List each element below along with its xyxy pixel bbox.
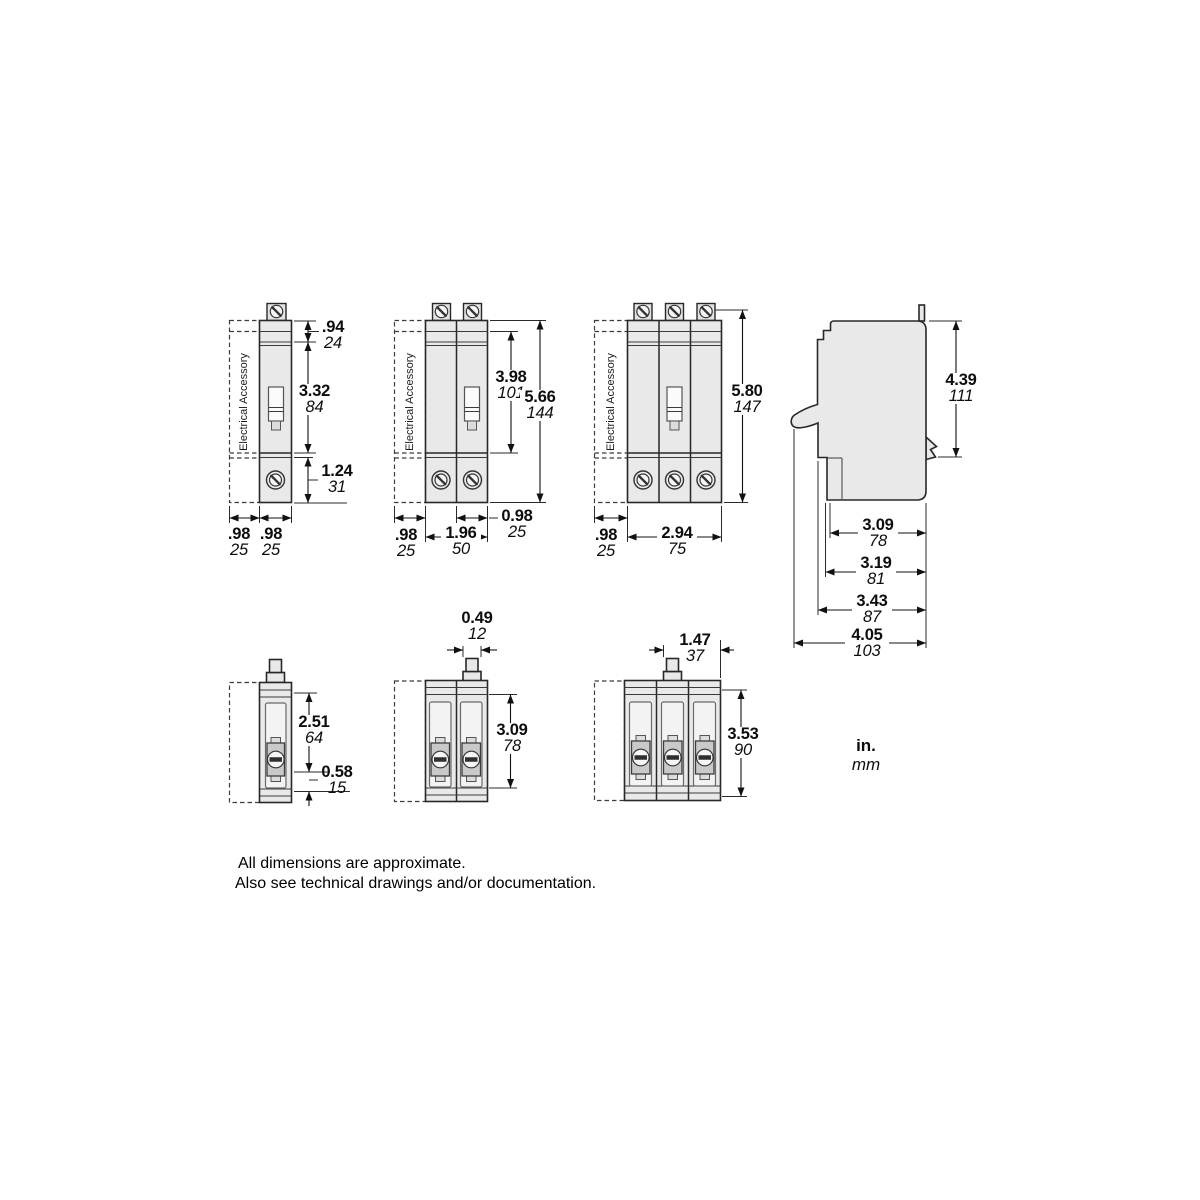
top-view-3pole [595, 640, 748, 801]
load-terminal-screw-icon [267, 471, 285, 489]
dim-mm-value: 25 [597, 544, 615, 560]
dim-front2p-height-total: 5.66 144 [520, 390, 560, 421]
dim-front3p-width-accessory: .98 25 [589, 528, 623, 559]
line-terminal-screw-icon [433, 304, 451, 321]
dim-side-depth-d: 4.05 103 [845, 628, 889, 659]
dim-side-depth-a: 3.09 78 [858, 518, 898, 549]
accessory-dashed-box [230, 683, 260, 803]
units-inches-label: in. [840, 736, 892, 755]
line-terminal-screw-icon [666, 304, 684, 321]
breaker-side-profile [791, 321, 926, 500]
units-mm-label: mm [840, 755, 892, 774]
dim-side-depth-b: 3.19 81 [856, 556, 896, 587]
dim-mm-value: 144 [527, 406, 554, 422]
line-terminal-screw-icon [464, 304, 482, 321]
lug-screw-icon [431, 738, 450, 782]
dim-top1p-depth-lug: 0.58 15 [319, 765, 355, 796]
load-terminal-screw-icon [697, 471, 715, 489]
load-terminal-screw-icon [634, 471, 652, 489]
dim-mm-value: 15 [328, 781, 346, 797]
accessory-dashed-box [395, 681, 426, 802]
dim-front2p-width-accessory: .98 25 [389, 528, 423, 559]
dim-top3p-depth: 3.53 90 [723, 727, 763, 758]
dim-mm-value: 87 [863, 610, 881, 626]
dim-mm-value: 25 [397, 544, 415, 560]
note-see-documentation: Also see technical drawings and/or docum… [235, 875, 596, 893]
dim-front2p-width-total: 1.96 50 [441, 526, 481, 557]
units-legend: in. mm [840, 736, 892, 774]
dim-front1p-height-top: .94 24 [316, 320, 350, 351]
dim-mm-value: 50 [452, 542, 470, 558]
handle-tip [270, 660, 282, 673]
note-dimensions-approximate: All dimensions are approximate. [238, 855, 466, 873]
lug-screw-icon [696, 736, 715, 780]
lug-screw-icon [664, 736, 683, 780]
load-terminal-screw-icon [464, 471, 482, 489]
dim-mm-value: 31 [328, 480, 346, 496]
lug-screw-icon [462, 738, 481, 782]
dim-mm-value: 24 [324, 336, 342, 352]
dimension-drawing-page: Electrical Accessory Electrical Accessor… [0, 0, 1200, 1200]
line-terminal-screw-icon [697, 304, 715, 321]
load-terminal-screw-icon [432, 471, 450, 489]
dim-mm-value: 84 [306, 400, 324, 416]
dim-front1p-height-bottom: 1.24 31 [319, 464, 355, 495]
front-view-3pole [595, 304, 749, 543]
electrical-accessory-label: Electrical Accessory [605, 353, 617, 451]
electrical-accessory-label: Electrical Accessory [238, 353, 250, 451]
dim-front3p-height-total: 5.80 147 [726, 384, 768, 415]
dim-front2p-width-pole: 0.98 25 [499, 509, 535, 540]
line-terminal-screw-icon [634, 304, 652, 321]
dim-mm-value: 12 [468, 627, 486, 643]
dimension-drawing-canvas [0, 0, 1200, 1200]
dim-side-depth-c: 3.43 87 [852, 594, 892, 625]
dim-mm-value: 25 [262, 543, 280, 559]
dim-mm-value: 90 [734, 743, 752, 759]
lug-screw-icon [267, 738, 285, 782]
dim-mm-value: 78 [869, 534, 887, 550]
lug-screw-icon [632, 736, 651, 780]
line-terminal-screw-icon [267, 304, 286, 321]
dim-mm-value: 25 [230, 543, 248, 559]
dim-mm-value: 37 [686, 649, 704, 665]
dim-mm-value: 25 [508, 525, 526, 541]
handle-tip [466, 659, 478, 672]
dim-mm-value: 75 [668, 542, 686, 558]
load-terminal-screw-icon [666, 471, 684, 489]
electrical-accessory-label: Electrical Accessory [404, 353, 416, 451]
top-pin [919, 305, 925, 321]
dim-front1p-height-mid: 3.32 84 [294, 384, 335, 415]
accessory-dashed-box [595, 681, 625, 801]
dim-side-height: 4.39 111 [939, 373, 983, 404]
dim-mm-value: 147 [734, 400, 761, 416]
dim-mm-value: 103 [854, 644, 881, 660]
dim-mm-value: 64 [305, 731, 323, 747]
mounting-clip [926, 437, 937, 460]
dim-front3p-width-total: 2.94 75 [657, 526, 697, 557]
dim-mm-value: 78 [503, 739, 521, 755]
dim-mm-value: 111 [949, 389, 973, 405]
dim-mm-value: 81 [867, 572, 885, 588]
dim-top1p-depth-body: 2.51 64 [294, 715, 334, 746]
dim-front1p-width-accessory: .98 25 [222, 527, 256, 558]
dim-front1p-width-pole: .98 25 [254, 527, 288, 558]
dim-top3p-handle-offset: 1.47 37 [677, 633, 713, 664]
dim-top2p-handle-width: 0.49 12 [459, 611, 495, 642]
dim-top2p-depth: 3.09 78 [492, 723, 532, 754]
